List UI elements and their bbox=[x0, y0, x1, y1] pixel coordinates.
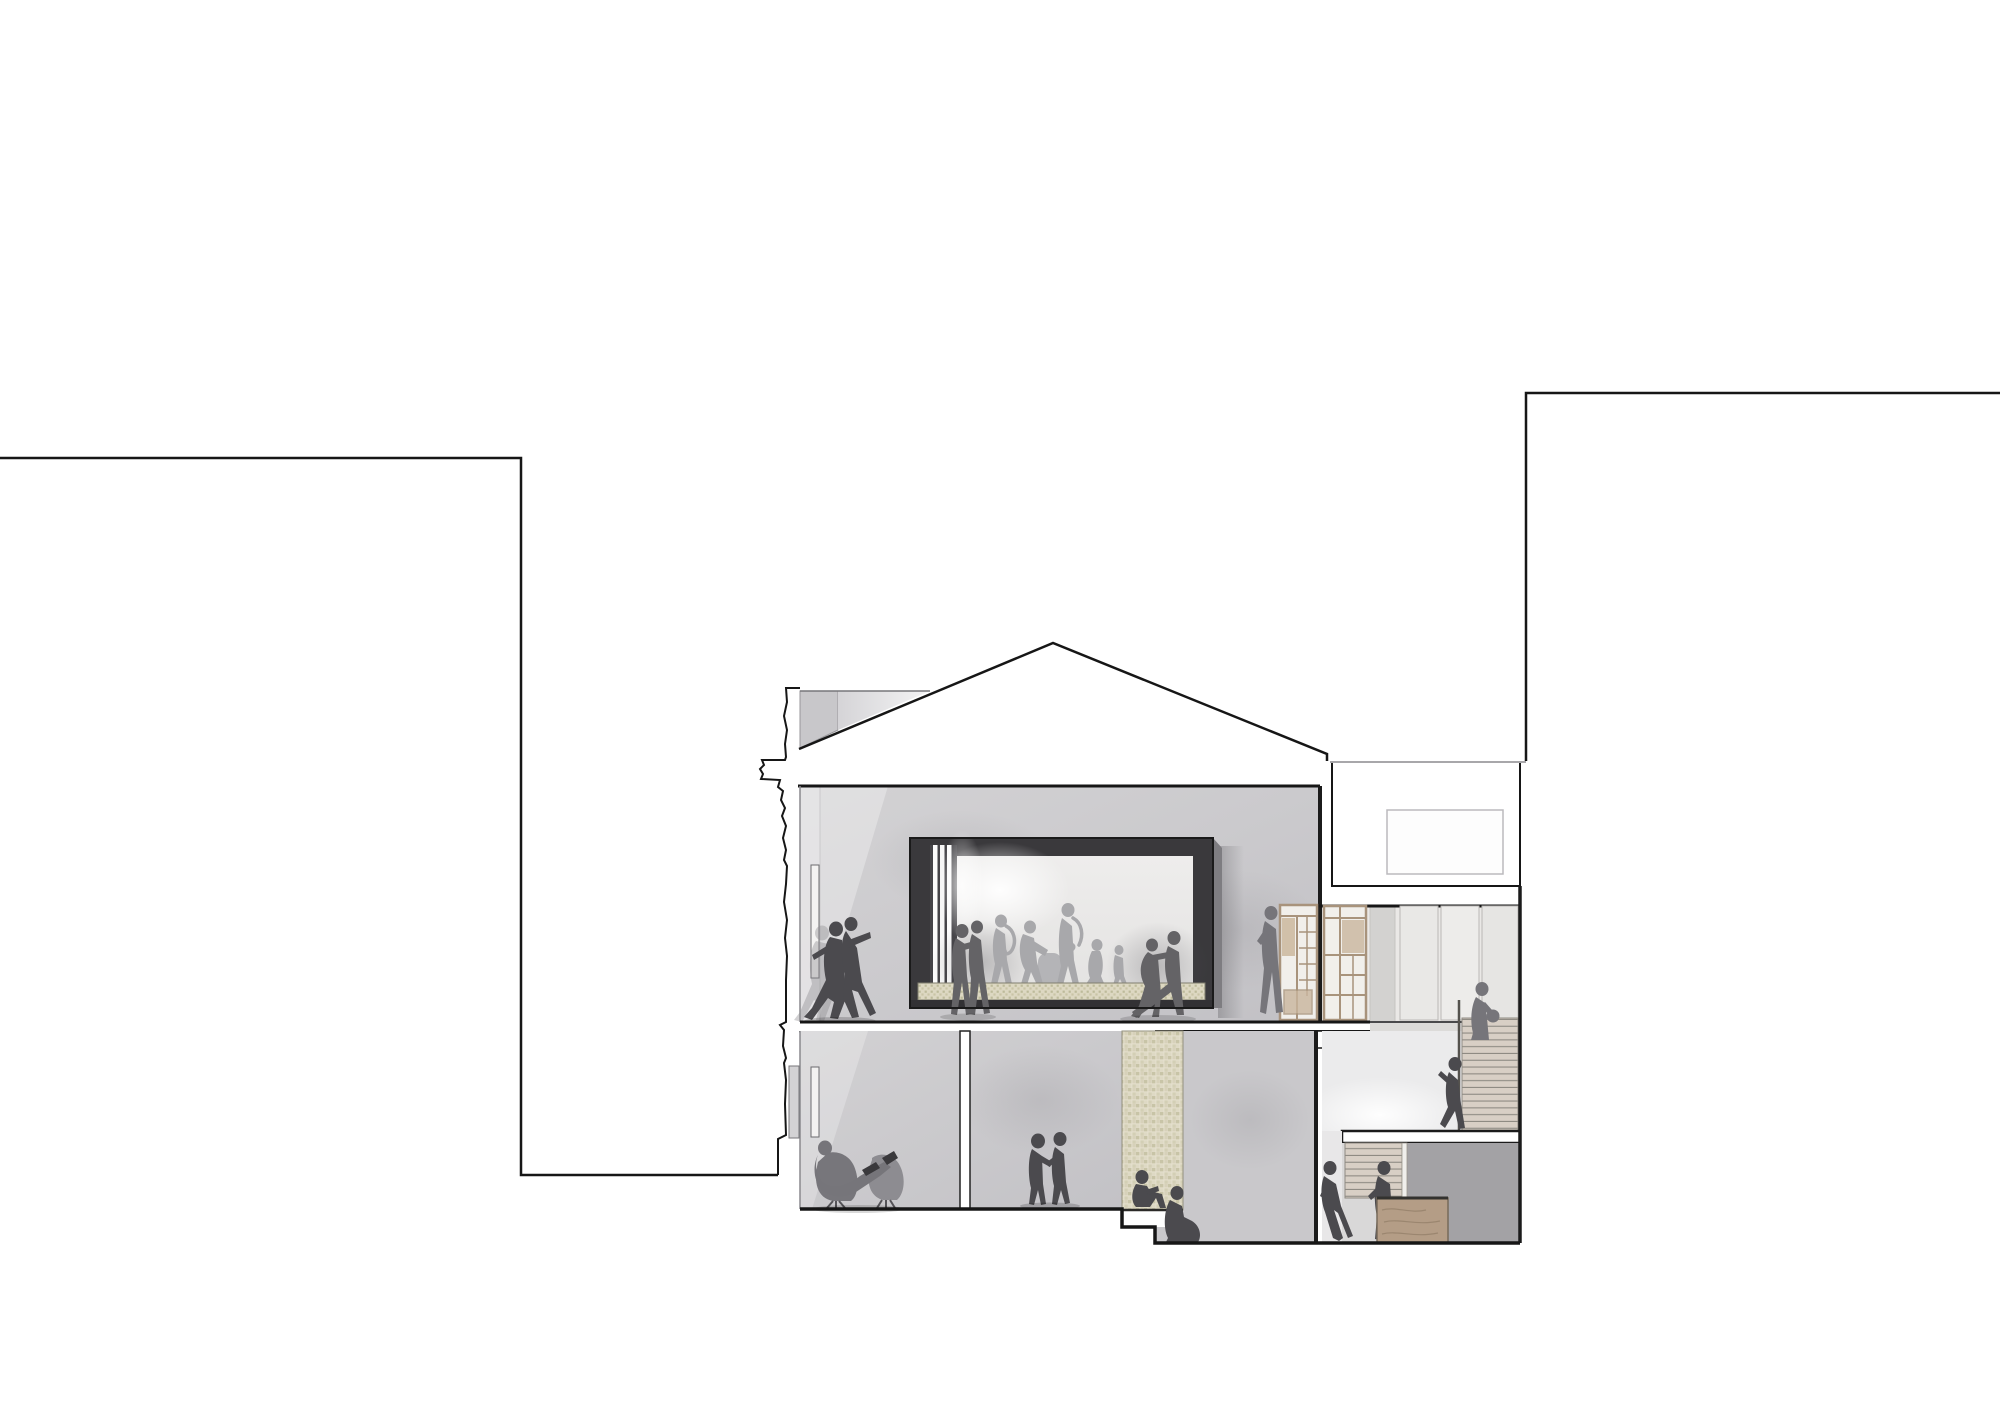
skylight bbox=[1387, 810, 1503, 874]
plywood-box bbox=[1377, 1198, 1448, 1243]
glass-partition bbox=[960, 1031, 970, 1209]
window-frame-side-face bbox=[1213, 838, 1222, 1008]
left-neighbor-outline bbox=[0, 458, 778, 1175]
stair-landing-slab bbox=[1342, 1131, 1520, 1143]
dancer-floor-shadow bbox=[940, 1014, 996, 1021]
roof-volume bbox=[1330, 761, 1526, 886]
lower-stair-flight bbox=[1345, 1143, 1402, 1198]
ground-floor-pilaster bbox=[811, 1067, 819, 1137]
section-drawing-page bbox=[0, 0, 2000, 1418]
corridor-glass-panel bbox=[1370, 906, 1395, 1022]
right-neighbor-outline bbox=[1526, 393, 2000, 761]
timber-screen-2 bbox=[1324, 906, 1366, 1020]
exterior-wall-panel bbox=[789, 1066, 799, 1138]
lower-lounge-and-room bbox=[789, 1031, 1122, 1213]
lower-stair-stringer bbox=[1402, 1143, 1407, 1198]
upper-corridor bbox=[1318, 906, 1520, 1022]
section-drawing bbox=[0, 0, 2000, 1418]
tiled-pier bbox=[1122, 1031, 1183, 1210]
tiled-pier-and-sunken-room bbox=[1122, 1031, 1316, 1243]
roof-parapet-block-light bbox=[838, 691, 930, 730]
gable-roof bbox=[799, 643, 1327, 761]
slab-right-gray bbox=[1370, 1022, 1462, 1031]
wall-texture-blotch bbox=[1190, 1070, 1310, 1170]
upper-stair-flight bbox=[1462, 1018, 1518, 1131]
window-bay bbox=[910, 830, 1244, 1018]
timber-screen-1 bbox=[1280, 905, 1317, 1020]
basement-stair-room bbox=[1320, 1131, 1520, 1243]
